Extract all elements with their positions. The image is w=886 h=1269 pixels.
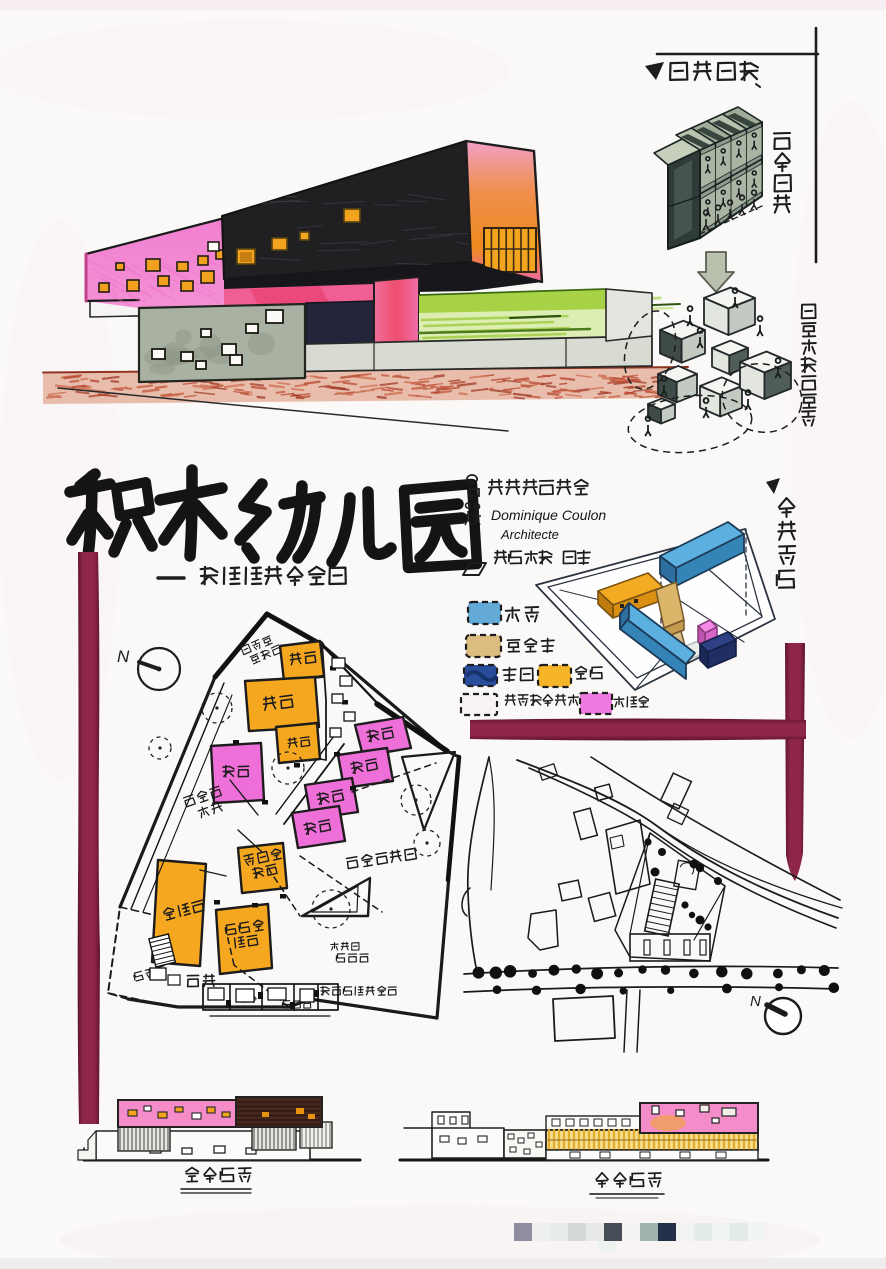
svg-text:Architecte: Architecte xyxy=(500,527,559,542)
svg-text:Dominique Coulon: Dominique Coulon xyxy=(491,507,606,523)
svg-text:N: N xyxy=(750,993,761,1010)
svg-text:N: N xyxy=(117,647,130,666)
